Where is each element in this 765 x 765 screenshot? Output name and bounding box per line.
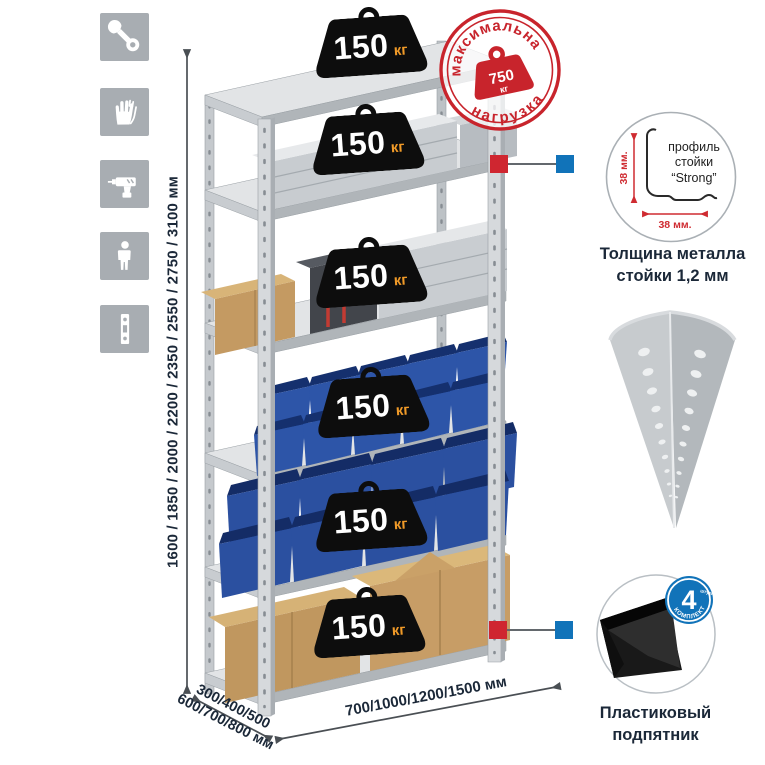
shelf-load-badge: 150кг	[312, 477, 428, 553]
drill-icon	[100, 160, 149, 208]
callout-marker-blue-profile	[556, 155, 574, 173]
product-infographic: 1600 / 1850 / 2000 / 2200 / 2350 / 2550 …	[0, 0, 765, 765]
callout-marker-red-foot	[489, 621, 507, 639]
corner-post-image	[600, 300, 745, 535]
foot-caption: Пластиковый подпятник	[573, 702, 738, 746]
callout-marker-blue-foot	[555, 621, 573, 639]
shelf-load-badge: 150кг	[312, 3, 428, 79]
shelf-load-badge: 150кг	[309, 100, 425, 176]
post-profile-icon	[100, 305, 149, 353]
profile-caption: Толщина металла стойки 1,2 мм	[585, 243, 760, 287]
person-icon	[100, 232, 149, 280]
included-count-badge: 4 штуки в комплекте	[662, 573, 716, 627]
shelf-load-badge: 150кг	[312, 233, 428, 309]
wrench-icon	[100, 13, 149, 61]
gloves-icon	[100, 88, 149, 136]
callout-line-profile	[506, 163, 558, 165]
svg-text:стойки: стойки	[675, 155, 713, 169]
callout-line-foot	[505, 629, 557, 631]
max-load-stamp: максимальная нагрузка 750 кг	[425, 0, 574, 145]
svg-text:38 мм.: 38 мм.	[618, 151, 630, 184]
shelf-load-badge: 150кг	[310, 583, 426, 659]
callout-marker-red-profile	[490, 155, 508, 173]
svg-text:4: 4	[681, 585, 696, 615]
svg-text:профиль: профиль	[668, 140, 720, 154]
svg-text:“Strong”: “Strong”	[671, 171, 716, 185]
height-dimension-label: 1600 / 1850 / 2000 / 2200 / 2350 / 2550 …	[160, 53, 186, 690]
svg-text:38 мм.: 38 мм.	[658, 219, 691, 231]
post-profile-detail: 38 мм. 38 мм. профиль стойки “Strong”	[604, 110, 740, 246]
shelf-load-badge: 150кг	[314, 363, 430, 439]
